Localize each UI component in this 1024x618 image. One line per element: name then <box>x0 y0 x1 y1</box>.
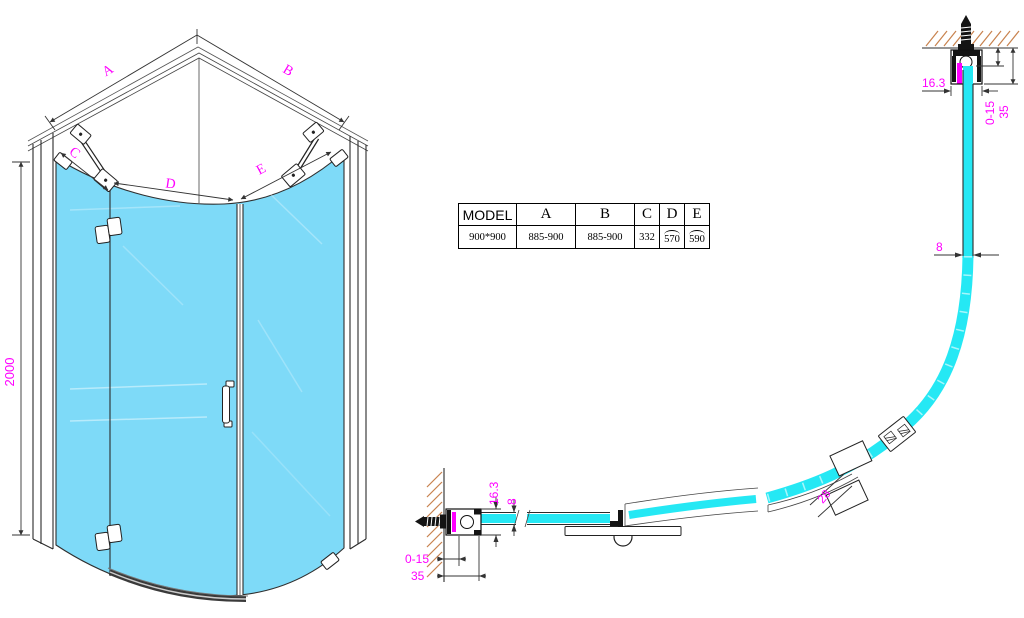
table-header-a: A <box>517 204 576 226</box>
magnetic-seal-top <box>957 63 962 84</box>
dimension-a-b: A B <box>45 29 349 130</box>
table-value-d: 570 <box>660 226 685 249</box>
table-value-e: 590 <box>685 226 710 249</box>
table-header-model: MODEL <box>459 204 517 226</box>
plan-section-view: 28 <box>405 15 1019 583</box>
height-dimension-label: 2000 <box>2 358 17 387</box>
right-wall-profile <box>350 136 366 549</box>
table-header-row: MODEL A B C D E <box>459 204 710 226</box>
wall-profile-left <box>446 509 481 535</box>
wall-anchor-screw-top <box>958 15 974 50</box>
profile-width-label-left: 16.3 <box>487 481 501 505</box>
front-elevation-view: A B 2000 <box>2 29 368 599</box>
table-value-row: 900*900 885-900 885-900 332 570 590 <box>459 226 710 249</box>
dim-0-15-left: 0-15 <box>405 536 466 566</box>
adjustment-label-top: 0-15 <box>983 101 997 125</box>
left-wall-profile <box>33 133 53 549</box>
dimension-b-label: B <box>280 62 296 80</box>
dimension-a-label: A <box>100 62 117 81</box>
profile-width-label-top: 16.3 <box>922 76 946 90</box>
table-header-b: B <box>576 204 635 226</box>
dimension-e-label: E <box>254 161 269 178</box>
dimension-d-label: D <box>164 176 176 192</box>
drawing-svg: A B 2000 <box>0 0 1024 618</box>
dimension-table: MODEL A B C D E 900*900 885-900 885-900 … <box>458 203 710 249</box>
height-dimension: 2000 <box>2 162 30 535</box>
technical-drawing-page: A B 2000 <box>0 0 1024 618</box>
magnetic-seal-left <box>452 512 456 532</box>
table-header-d: D <box>660 204 685 226</box>
door-section <box>625 488 758 526</box>
table-value-b: 885-900 <box>576 226 635 249</box>
wall-anchor-screw-left <box>415 515 446 529</box>
table-value-a: 885-900 <box>517 226 576 249</box>
glass-thickness-label: 8 <box>936 240 943 254</box>
fixed-strip-section <box>472 510 610 527</box>
glass-section-vertical <box>963 66 973 258</box>
adjustment-label-left: 0-15 <box>405 552 429 566</box>
profile-depth-label-top: 35 <box>997 105 1011 119</box>
glass-panels <box>56 152 344 596</box>
glass-thickness-label-left: 8 <box>505 498 519 505</box>
glass-section-curve <box>899 256 968 431</box>
profile-depth-label-left: 35 <box>411 569 425 583</box>
table-value-c: 332 <box>635 226 660 249</box>
table-value-model: 900*900 <box>459 226 517 249</box>
dim-35-top: 35 <box>997 48 1013 119</box>
table-header-e: E <box>685 204 710 226</box>
table-header-c: C <box>635 204 660 226</box>
